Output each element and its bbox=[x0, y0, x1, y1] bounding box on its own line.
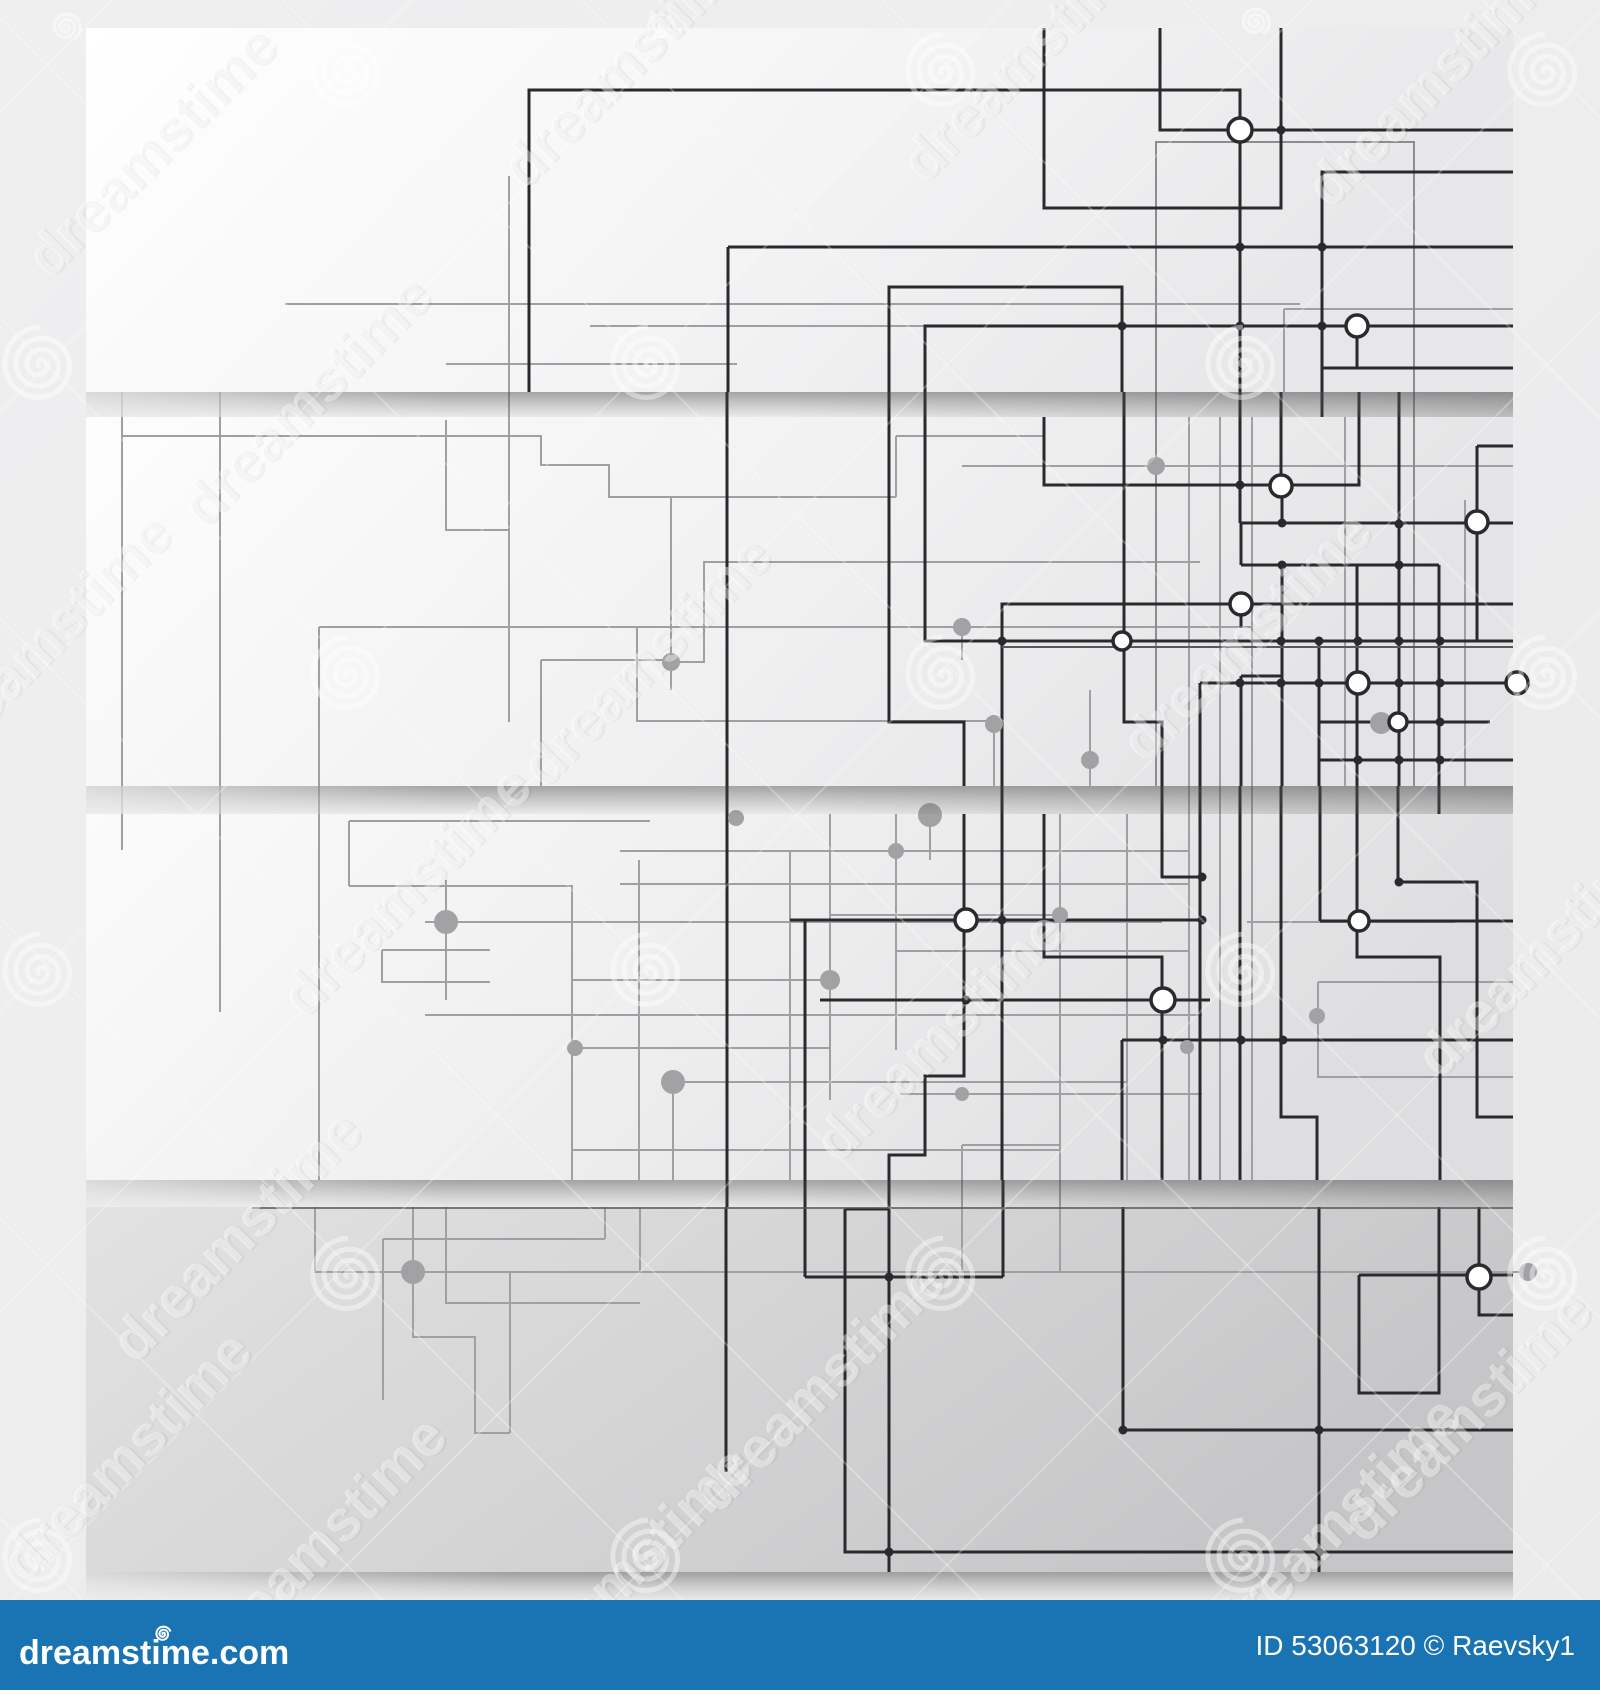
svg-text:dreamstime.com: dreamstime.com bbox=[19, 1634, 289, 1672]
svg-text:ID 53063120 © Raevsky1: ID 53063120 © Raevsky1 bbox=[1256, 1630, 1575, 1661]
